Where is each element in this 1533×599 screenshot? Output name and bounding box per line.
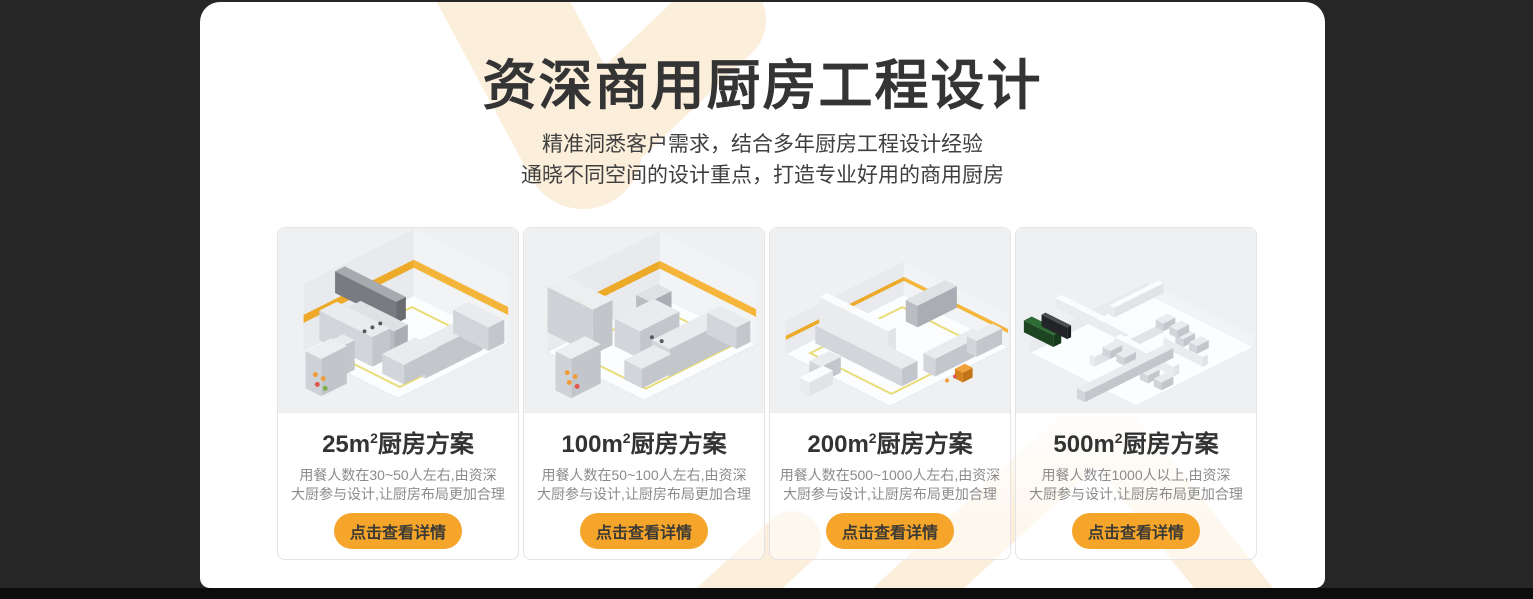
next-section-edge [0,588,1533,599]
superscript: 2 [370,430,378,446]
view-details-button[interactable]: 点击查看详情 [334,513,462,549]
kitchen-render-image [524,228,764,413]
plan-card-title: 500m2厨房方案 [1016,424,1256,459]
plan-card-500m2[interactable]: 500m2厨房方案 用餐人数在1000人以上,由资深大厨参与设计,让厨房布局更加… [1015,227,1257,560]
plan-card-title: 200m2厨房方案 [770,424,1010,459]
plan-card-description: 用餐人数在30~50人左右,由资深大厨参与设计,让厨房布局更加合理 [284,466,512,504]
plan-card-title: 100m2厨房方案 [524,424,764,459]
superscript: 2 [869,430,877,446]
plan-card-description: 用餐人数在1000人以上,由资深大厨参与设计,让厨房布局更加合理 [1022,466,1250,504]
plan-card-200m2[interactable]: 200m2厨房方案 用餐人数在500~1000人左右,由资深大厨参与设计,让厨房… [769,227,1011,560]
kitchen-render-image [278,228,518,413]
page-subtitle-line2: 通晓不同空间的设计重点，打造专业好用的商用厨房 [200,162,1325,190]
view-details-button[interactable]: 点击查看详情 [580,513,708,549]
plan-card-title: 25m2厨房方案 [278,424,518,459]
page-title: 资深商用厨房工程设计 [200,54,1325,118]
plan-cards-row: 25m2厨房方案 用餐人数在30~50人左右,由资深大厨参与设计,让厨房布局更加… [277,227,1257,560]
plan-card-100m2[interactable]: 100m2厨房方案 用餐人数在50~100人左右,由资深大厨参与设计,让厨房布局… [523,227,765,560]
plan-card-25m2[interactable]: 25m2厨房方案 用餐人数在30~50人左右,由资深大厨参与设计,让厨房布局更加… [277,227,519,560]
superscript: 2 [1115,430,1123,446]
plan-card-description: 用餐人数在500~1000人左右,由资深大厨参与设计,让厨房布局更加合理 [776,466,1004,504]
view-details-button[interactable]: 点击查看详情 [826,513,954,549]
kitchen-render-image [1016,228,1256,413]
kitchen-render-image [770,228,1010,413]
page-background: { "colors": { "accent_orange": "#f6a52b"… [0,0,1533,599]
content-panel: 资深商用厨房工程设计 精准洞悉客户需求，结合多年厨房工程设计经验 通晓不同空间的… [200,2,1325,588]
superscript: 2 [623,430,631,446]
plan-card-description: 用餐人数在50~100人左右,由资深大厨参与设计,让厨房布局更加合理 [530,466,758,504]
view-details-button[interactable]: 点击查看详情 [1072,513,1200,549]
page-subtitle-line1: 精准洞悉客户需求，结合多年厨房工程设计经验 [200,131,1325,159]
